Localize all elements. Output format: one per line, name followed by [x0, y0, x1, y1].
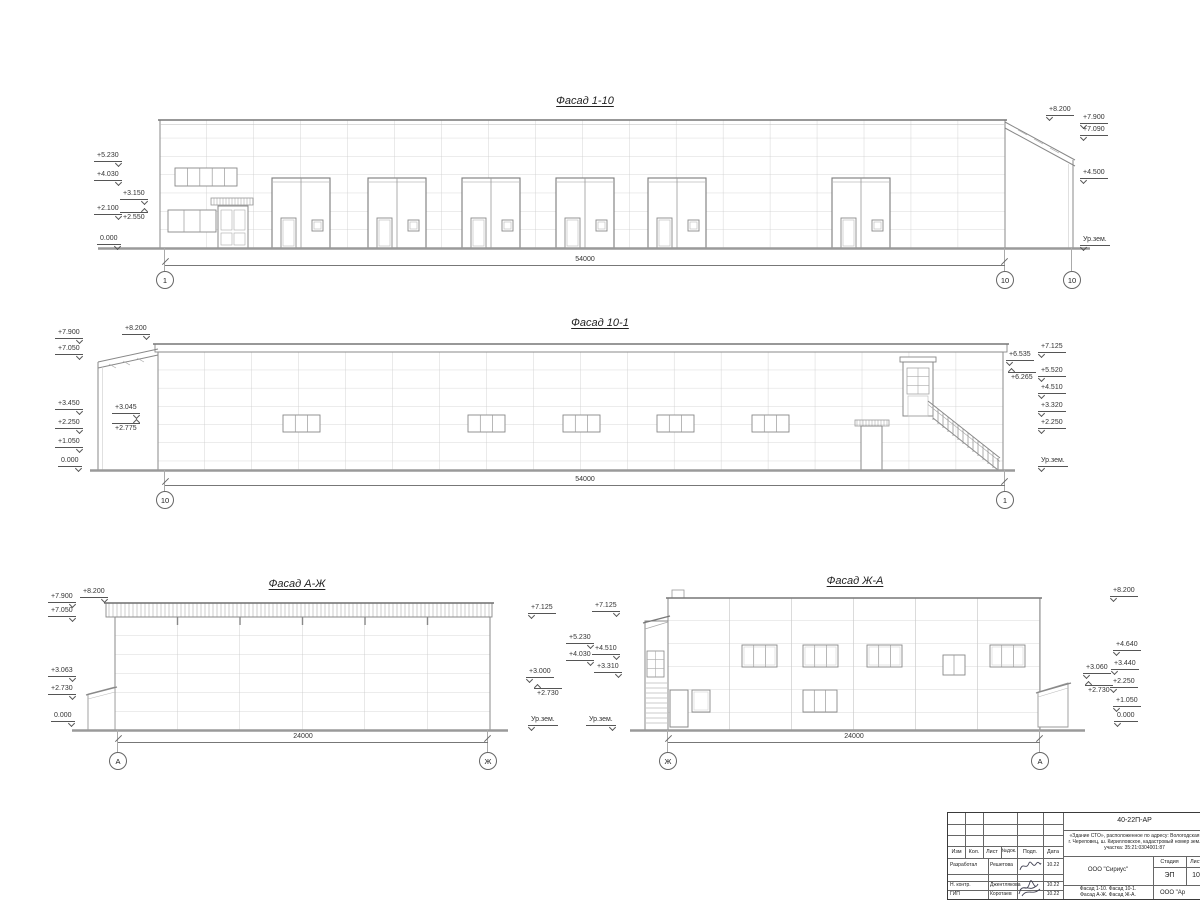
approving-org: ООО "Ар	[1160, 890, 1185, 897]
dimension-value: 54000	[573, 476, 596, 483]
axis-bubble: А	[1031, 752, 1049, 770]
elevation-mark: +2.250	[1038, 419, 1066, 429]
signature	[1016, 876, 1043, 899]
elevation-mark: +2.730	[48, 685, 76, 695]
elevation-mark: +3.150	[120, 190, 148, 200]
col-podp: Подп.	[1017, 849, 1043, 855]
elevation-mark: +8.200	[1110, 587, 1138, 597]
elevation-mark: +5.230	[94, 152, 122, 162]
elevation-mark: 0.000	[58, 457, 82, 467]
facade-a-zh-drawing	[60, 592, 580, 744]
axis-bubble: Ж	[659, 752, 677, 770]
stage-label: Стадия	[1153, 859, 1186, 865]
ground-level-mark: Ур.зем.	[1080, 236, 1110, 246]
ground-level-mark: Ур.зем.	[1038, 457, 1068, 467]
axis-bubble: 10	[156, 491, 174, 509]
axis-bubble: 1	[996, 491, 1014, 509]
col-data: Дата	[1043, 849, 1063, 855]
right-canopy	[1005, 122, 1075, 248]
elevation-mark: +7.125	[1038, 343, 1066, 353]
elevation-mark: +3.320	[1038, 402, 1066, 412]
dimension-line: 24000	[668, 742, 1040, 743]
role-gip: ГИП	[950, 892, 960, 898]
elevation-mark: +4.030	[566, 651, 594, 661]
elevation-mark: +2.730	[534, 688, 562, 698]
elevation-mark: +3.450	[55, 400, 83, 410]
elevation-mark: +3.310	[594, 663, 622, 673]
elevation-mark: +4.640	[1113, 641, 1141, 651]
col-izm: Изм	[948, 849, 965, 855]
sheet-label: Лист	[1186, 859, 1200, 865]
sheet-content-line2: Фасад А-Ж. Фасад Ж-А.	[1063, 893, 1153, 899]
facade-1-10-title: Фасад 1-10	[556, 95, 614, 107]
elevation-mark: +3.440	[1111, 660, 1139, 670]
project-code: 40-22П-АР	[1063, 817, 1200, 825]
elevation-mark: +8.200	[80, 588, 108, 598]
elevation-mark: 0.000	[97, 235, 121, 245]
axis-bubble: Ж	[479, 752, 497, 770]
dimension-value: 24000	[842, 733, 865, 740]
facade-10-1-drawing	[85, 330, 1090, 485]
dimension-line: 54000	[165, 485, 1005, 486]
extension-line	[1071, 248, 1072, 271]
dimension-value: 54000	[573, 256, 596, 263]
role-developed: Разработал	[950, 863, 977, 869]
elevation-mark: +4.500	[1080, 169, 1108, 179]
stage-value: ЭП	[1153, 872, 1186, 880]
elevation-mark: +7.900	[1080, 114, 1108, 124]
elevation-mark: +4.030	[94, 171, 122, 181]
elevation-mark: +2.550	[120, 212, 148, 222]
axis-bubble: А	[109, 752, 127, 770]
elevation-mark: +5.520	[1038, 367, 1066, 377]
elevation-mark: +1.050	[55, 438, 83, 448]
elevation-mark: +5.230	[566, 634, 594, 644]
elevation-mark: +6.265	[1008, 372, 1036, 382]
left-leanto	[86, 687, 117, 730]
elevation-mark: 0.000	[1114, 712, 1138, 722]
elevation-mark: +7.090	[1080, 126, 1108, 136]
main-wall	[666, 590, 1042, 730]
elevation-mark: +3.000	[526, 668, 554, 678]
elevation-mark: +4.510	[1038, 384, 1066, 394]
facade-10-1-title: Фасад 10-1	[571, 317, 629, 329]
right-leanto	[1036, 683, 1071, 727]
elevation-mark: +7.125	[528, 604, 556, 614]
signature	[1018, 859, 1042, 873]
elevation-mark: +2.250	[1110, 678, 1138, 688]
role-ncontr: Н. контр.	[950, 883, 971, 889]
drawing-sheet: Фасад 1-10	[0, 0, 1200, 900]
title-block: Изм Кол. Лист №док. Подп. Дата Разработа…	[947, 812, 1200, 900]
elevation-mark: +4.510	[592, 645, 620, 655]
dimension-line: 54000	[165, 265, 1005, 266]
main-wall	[115, 617, 490, 730]
axis-bubble: 10	[996, 271, 1014, 289]
elevation-mark: +2.250	[55, 419, 83, 429]
date-developed: 10.22	[1043, 863, 1063, 869]
design-org: ООО "Сириус"	[1063, 867, 1153, 874]
elevation-mark: +3.063	[48, 667, 76, 677]
facade-a-zh-title: Фасад А-Ж	[269, 578, 326, 590]
elevation-mark: +7.125	[592, 602, 620, 612]
ribbon-window	[175, 168, 237, 186]
elevation-mark: +8.200	[122, 325, 150, 335]
date-gip: 10.22	[1043, 892, 1063, 898]
date-ncontr: 10.22	[1043, 883, 1063, 889]
name-developed: Решетова	[990, 863, 1013, 869]
elevation-mark: 0.000	[51, 712, 75, 722]
elevation-mark: +3.060	[1083, 664, 1111, 674]
stair-exit	[900, 357, 936, 416]
elevation-mark: +1.050	[1113, 697, 1141, 707]
elevation-mark: +7.050	[48, 607, 76, 617]
name-gip: Коротаев	[990, 892, 1012, 898]
facade-1-10-drawing	[90, 112, 1100, 262]
elevation-mark: +7.050	[55, 345, 83, 355]
elevation-mark: +7.900	[48, 593, 76, 603]
axis-bubble: 1	[156, 271, 174, 289]
elevation-mark: +2.775	[112, 423, 140, 433]
axis-bubble: 10	[1063, 271, 1081, 289]
ground-level-mark: Ур.зем.	[586, 716, 616, 726]
dimension-line: 24000	[118, 742, 488, 743]
col-list: Лист	[983, 849, 1001, 855]
elevation-mark: +3.045	[112, 404, 140, 414]
roof-band	[104, 603, 494, 617]
facade-zh-a-drawing	[620, 585, 1100, 747]
sheet-number: 10	[1186, 872, 1200, 880]
col-kol: Кол.	[965, 849, 983, 855]
stair-tower	[643, 616, 670, 730]
elevation-mark: +6.535	[1006, 351, 1034, 361]
elevation-mark: +8.200	[1046, 106, 1074, 116]
object-name-line3: участка: 35:21:0304001:87	[1064, 846, 1200, 852]
elevation-mark: +2.730	[1085, 685, 1113, 695]
ground-level-mark: Ур.зем.	[528, 716, 558, 726]
lower-window	[168, 210, 216, 232]
elevation-mark: +2.100	[94, 205, 122, 215]
dimension-value: 24000	[291, 733, 314, 740]
col-ndok: №док.	[1001, 849, 1017, 855]
elevation-mark: +7.900	[55, 329, 83, 339]
